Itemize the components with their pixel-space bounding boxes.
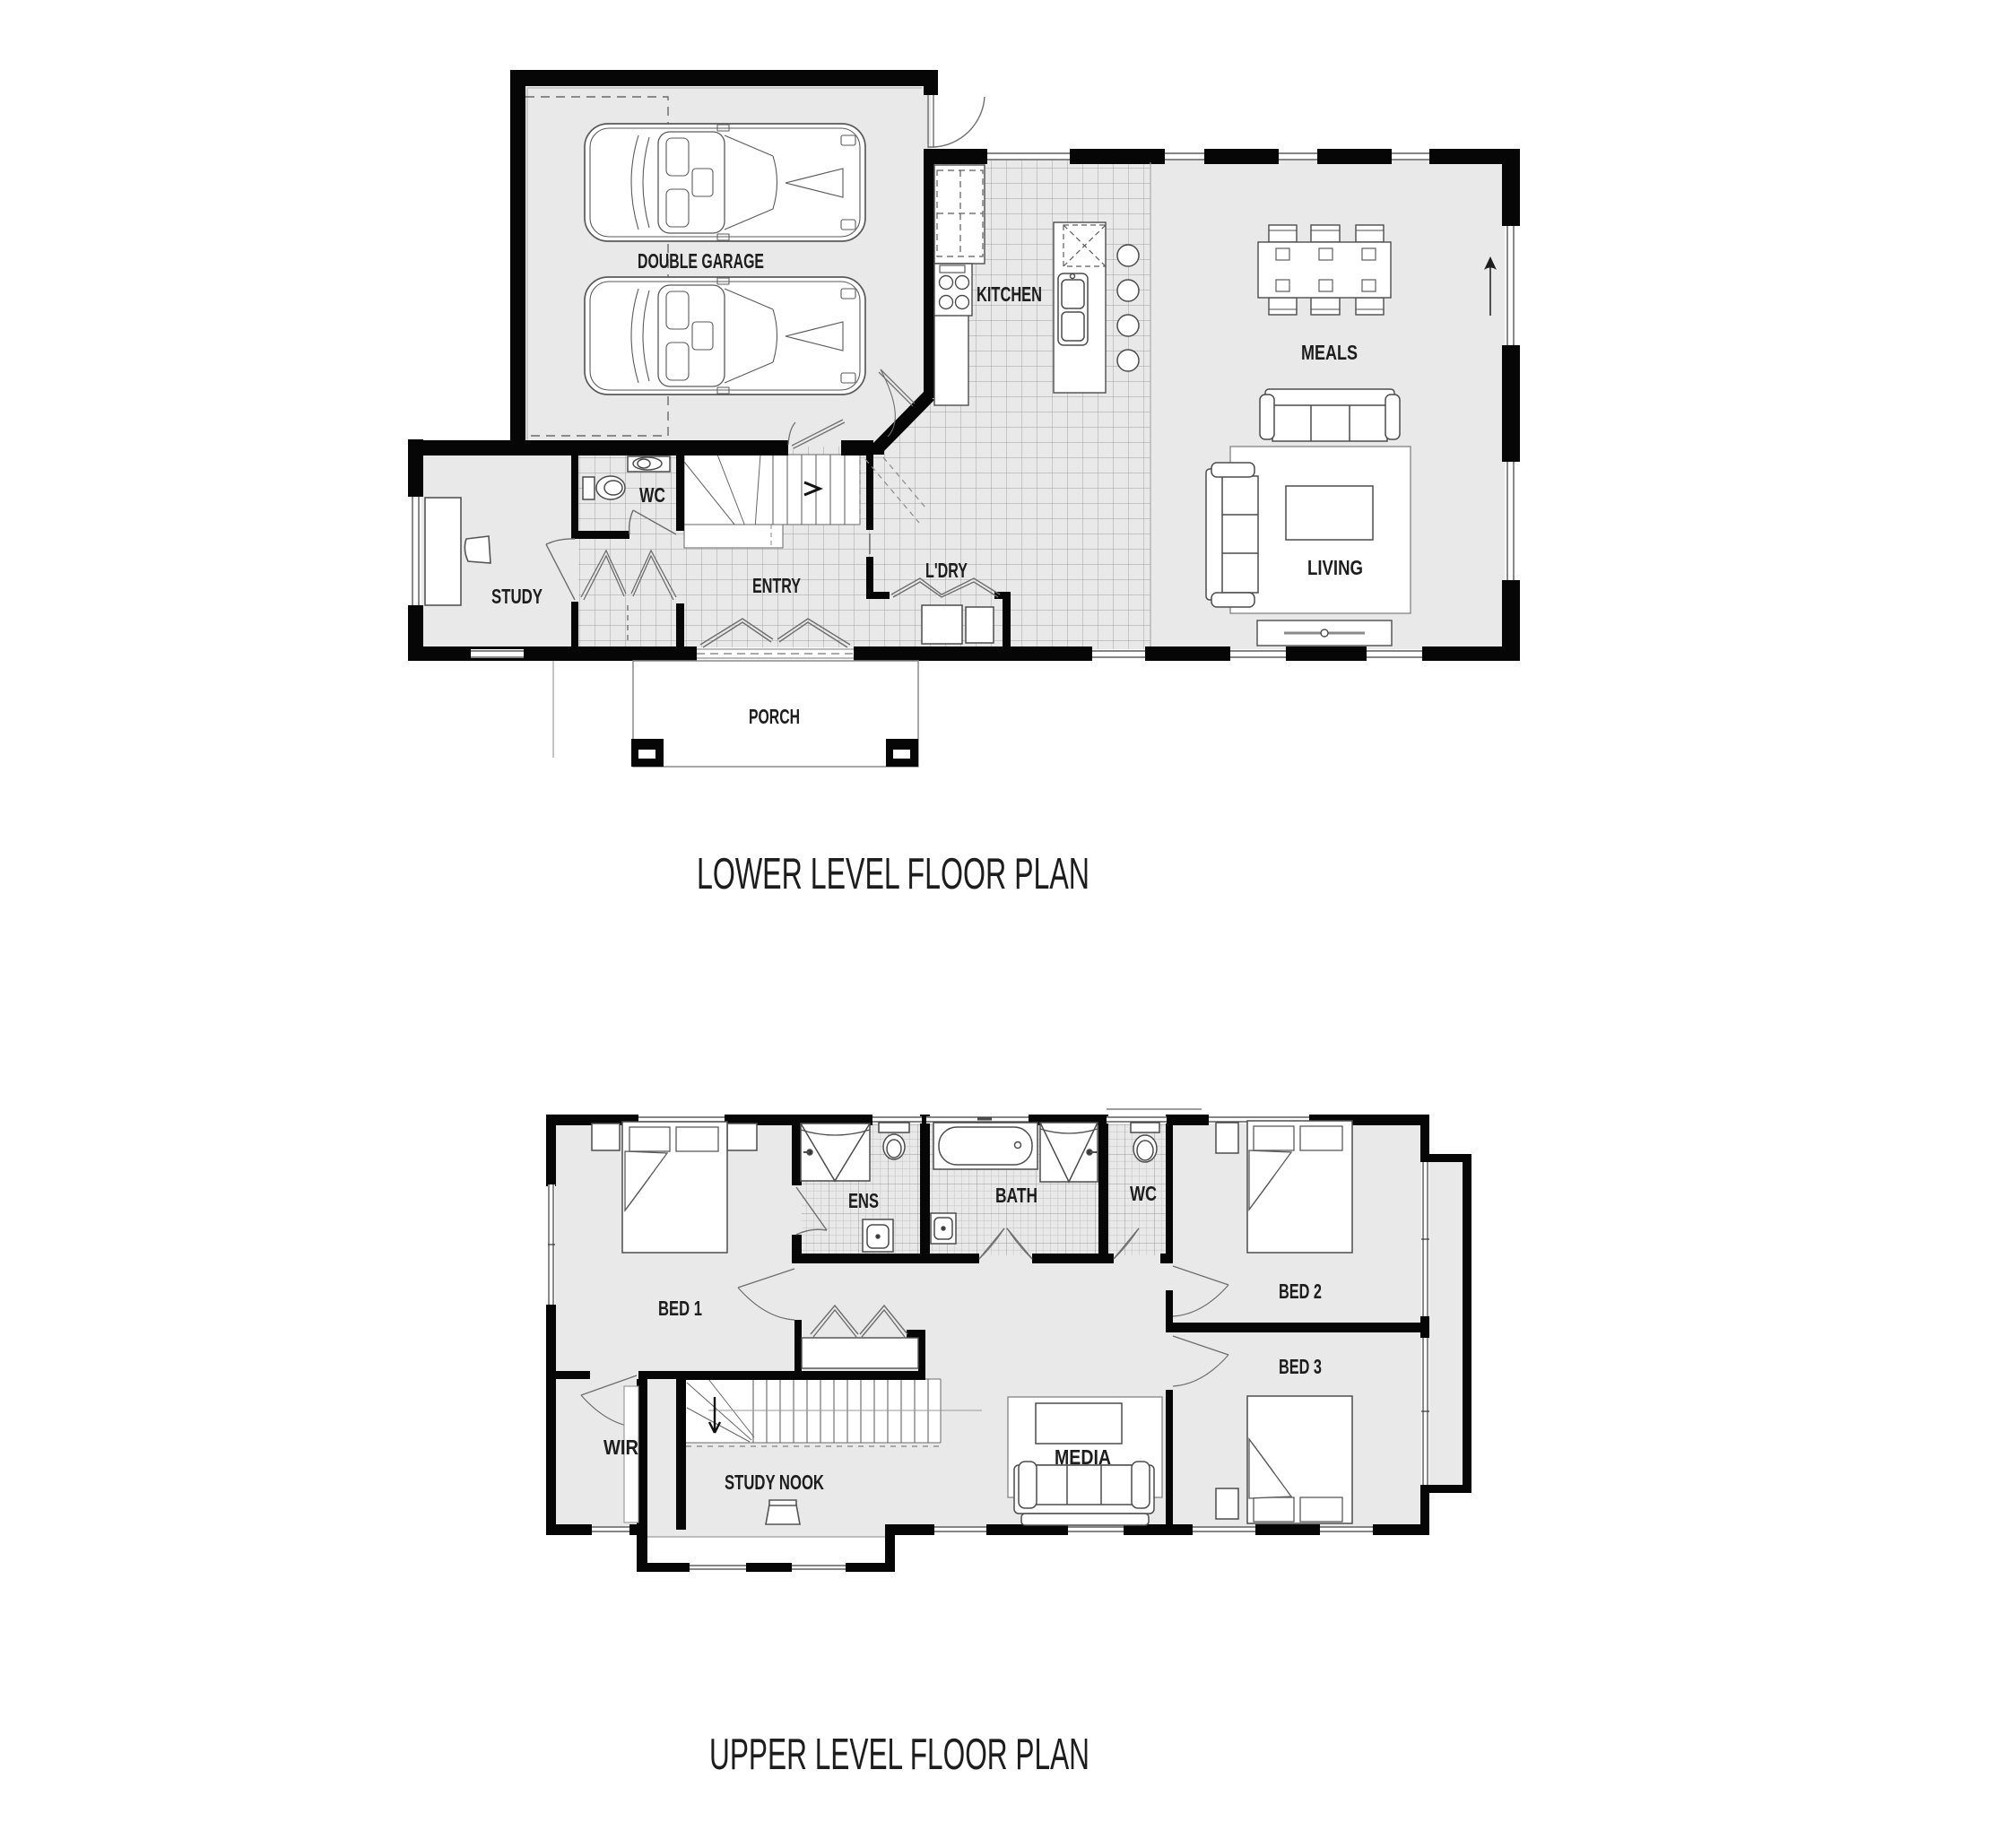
svg-text:ENS: ENS	[848, 1189, 879, 1212]
svg-text:L'DRY: L'DRY	[925, 559, 968, 582]
svg-text:LIVING: LIVING	[1307, 556, 1363, 579]
svg-text:LOWER LEVEL FLOOR PLAN: LOWER LEVEL FLOOR PLAN	[697, 850, 1089, 898]
svg-text:WC: WC	[639, 483, 665, 507]
svg-text:STUDY: STUDY	[491, 585, 543, 608]
svg-text:DOUBLE GARAGE: DOUBLE GARAGE	[638, 249, 764, 273]
svg-text:KITCHEN: KITCHEN	[977, 282, 1042, 306]
svg-text:BED 1: BED 1	[658, 1297, 702, 1320]
svg-text:WIR: WIR	[603, 1436, 638, 1459]
svg-text:PORCH: PORCH	[749, 705, 800, 728]
svg-text:BED 3: BED 3	[1279, 1355, 1322, 1378]
svg-text:MEALS: MEALS	[1301, 341, 1358, 364]
svg-text:WC: WC	[1130, 1182, 1157, 1205]
svg-text:BED 2: BED 2	[1279, 1280, 1322, 1303]
svg-text:STUDY NOOK: STUDY NOOK	[725, 1471, 824, 1494]
svg-text:BATH: BATH	[995, 1184, 1037, 1207]
svg-text:UPPER LEVEL FLOOR PLAN: UPPER LEVEL FLOOR PLAN	[709, 1731, 1089, 1779]
svg-text:ENTRY: ENTRY	[752, 574, 801, 597]
